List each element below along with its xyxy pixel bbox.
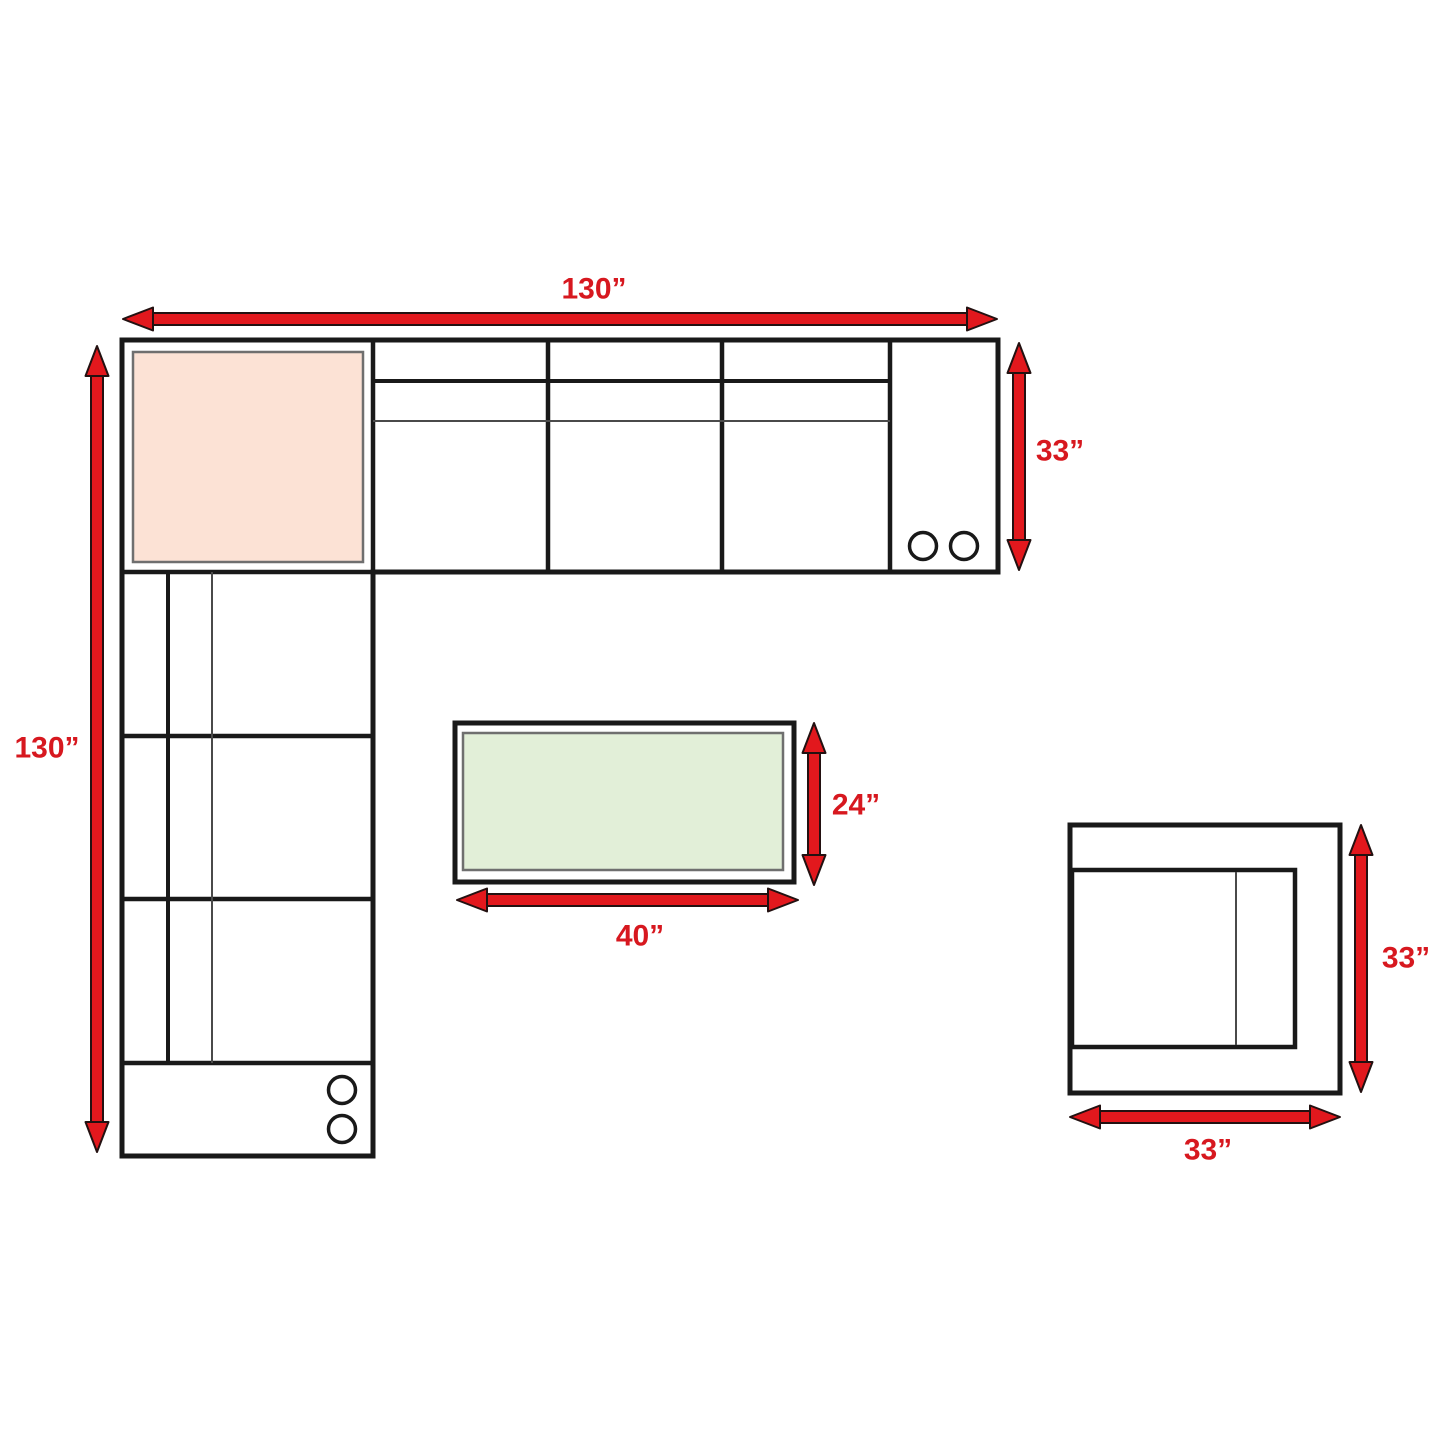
dimension-arrow-chair-depth — [1350, 825, 1373, 1092]
dimension-arrow-sectional-depth — [86, 346, 109, 1152]
corner-cushion — [133, 352, 363, 562]
arrowhead-down-icon — [803, 855, 826, 885]
arrowhead-up-icon — [803, 723, 826, 753]
dimension-arrow-ottoman-depth — [803, 723, 826, 885]
arrowhead-right-icon — [967, 308, 997, 331]
dimension-arrow-chair-width — [1070, 1106, 1340, 1129]
dimension-arrow-ottoman-width — [457, 889, 798, 912]
dimension-label-ottoman-width: 40” — [616, 920, 664, 953]
arrowhead-up-icon — [1008, 343, 1031, 373]
arrowhead-left-icon — [1070, 1106, 1100, 1129]
armchair-seat — [1072, 870, 1295, 1047]
cupholder-icon — [329, 1116, 356, 1143]
dimension-label-sectional-width: 130” — [561, 273, 626, 306]
dimension-label-chair-width: 33” — [1184, 1134, 1232, 1167]
cupholder-icon — [910, 533, 937, 560]
ottoman-cushion — [463, 733, 783, 870]
arrowhead-right-icon — [768, 889, 798, 912]
cupholder-icon — [951, 533, 978, 560]
floor-plan-diagram: 130” 130” 33” 24” 40” 33” 33” — [0, 0, 1445, 1445]
dimension-label-chair-depth: 33” — [1382, 942, 1430, 975]
arrowhead-down-icon — [86, 1122, 109, 1152]
floor-plan-canvas: 130” 130” 33” 24” 40” 33” 33” — [0, 0, 1445, 1445]
cupholder-icon — [329, 1077, 356, 1104]
dimension-arrow-section-depth — [1008, 343, 1031, 570]
arrowhead-down-icon — [1350, 1062, 1373, 1092]
arrowhead-left-icon — [457, 889, 487, 912]
arrowhead-down-icon — [1008, 540, 1031, 570]
dimension-label-section-depth: 33” — [1036, 435, 1084, 468]
arrowhead-up-icon — [1350, 825, 1373, 855]
dimension-label-ottoman-depth: 24” — [832, 789, 880, 822]
arrowhead-right-icon — [1310, 1106, 1340, 1129]
ottoman — [455, 723, 794, 882]
arrowhead-up-icon — [86, 346, 109, 376]
dimension-arrow-sectional-width — [123, 308, 997, 331]
dimension-label-sectional-depth: 130” — [14, 732, 79, 765]
arrowhead-left-icon — [123, 308, 153, 331]
armchair — [1070, 825, 1340, 1093]
